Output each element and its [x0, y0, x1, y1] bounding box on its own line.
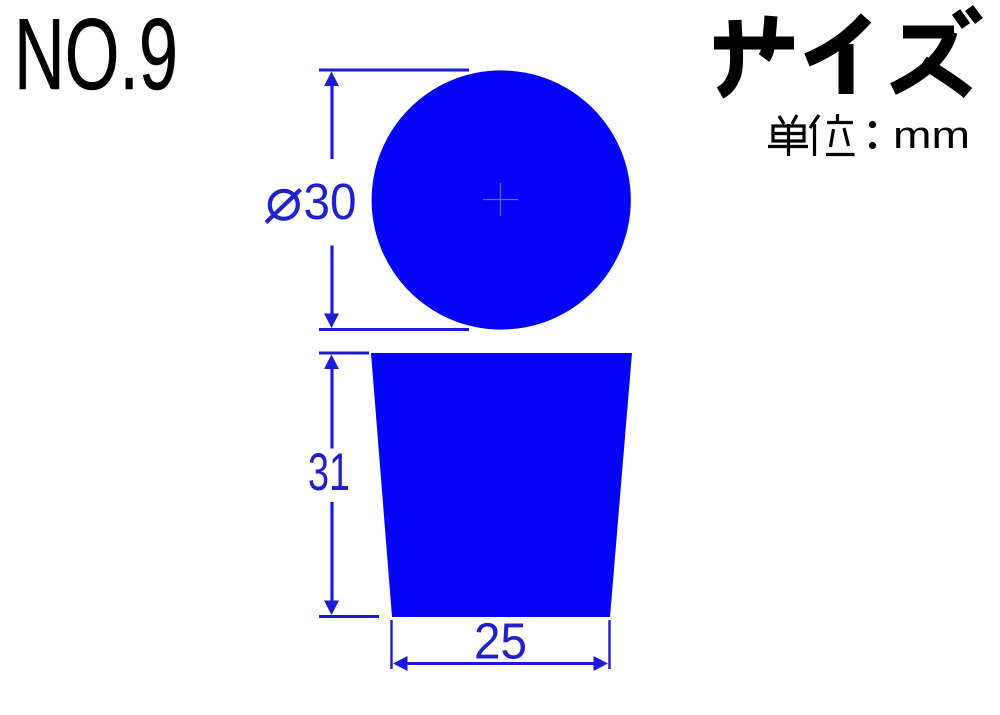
svg-text:NO.9: NO.9 [14, 0, 178, 111]
svg-text:30: 30 [304, 173, 357, 230]
svg-text:31: 31 [308, 443, 350, 502]
svg-text:mm: mm [893, 115, 970, 157]
svg-text:25: 25 [474, 613, 527, 670]
